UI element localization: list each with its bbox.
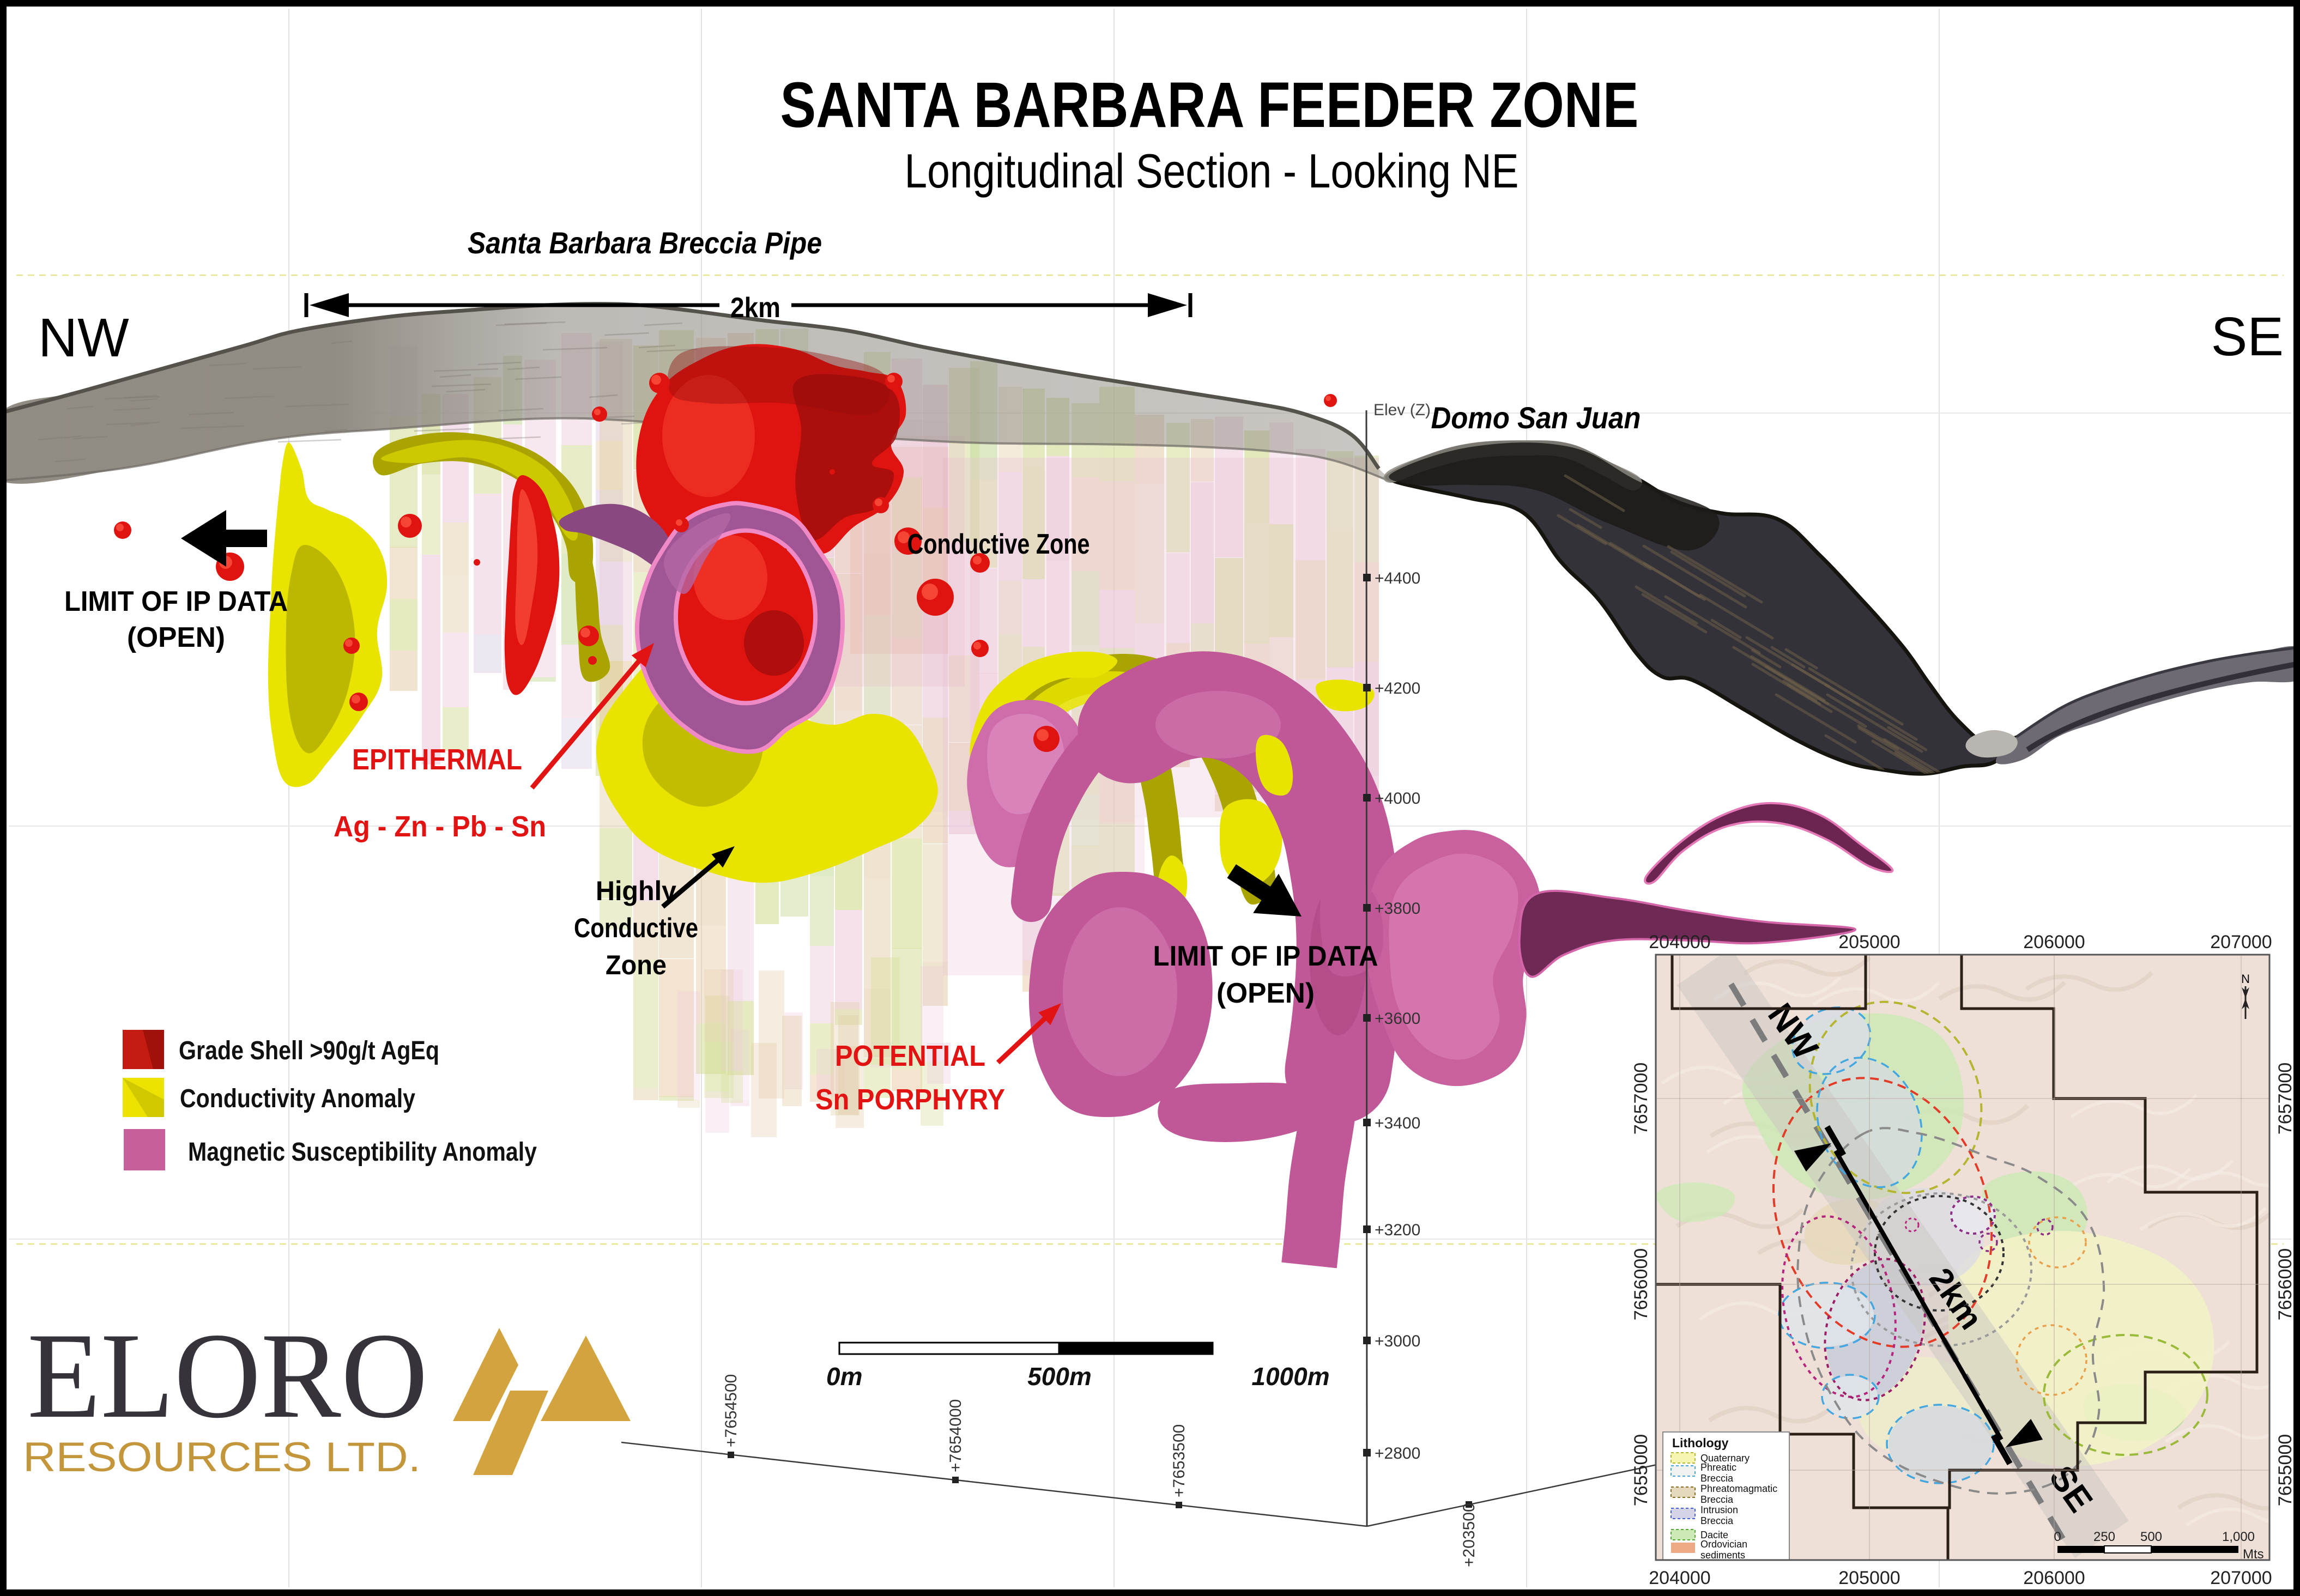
svg-text:Santa Barbara Breccia Pipe: Santa Barbara Breccia Pipe (468, 226, 822, 260)
svg-text:Ordovician: Ordovician (1700, 1539, 1747, 1550)
svg-text:500m: 500m (1027, 1362, 1092, 1391)
svg-text:Elev (Z): Elev (Z) (1373, 401, 1431, 419)
svg-text:1,000: 1,000 (2222, 1530, 2255, 1544)
svg-text:204000: 204000 (1649, 1568, 1710, 1588)
svg-text:+3600: +3600 (1375, 1010, 1420, 1028)
svg-text:+4200: +4200 (1375, 679, 1420, 697)
svg-text:Magnetic Susceptibility Anomal: Magnetic Susceptibility Anomaly (188, 1138, 537, 1167)
svg-text:7656000: 7656000 (2275, 1248, 2296, 1320)
svg-text:Grade Shell >90g/t AgEq: Grade Shell >90g/t AgEq (179, 1036, 439, 1065)
svg-text:N: N (2241, 972, 2250, 986)
svg-text:206000: 206000 (2023, 1568, 2085, 1588)
svg-text:+4000: +4000 (1375, 790, 1420, 808)
svg-text:+3400: +3400 (1375, 1114, 1420, 1132)
svg-text:Intrusion: Intrusion (1700, 1504, 1738, 1515)
svg-text:+7654500: +7654500 (722, 1374, 740, 1447)
svg-text:Ag - Zn - Pb - Sn: Ag - Zn - Pb - Sn (334, 810, 546, 843)
svg-text:7656000: 7656000 (1631, 1248, 1651, 1320)
svg-text:+203500: +203500 (1460, 1503, 1478, 1567)
svg-text:207000: 207000 (2210, 1568, 2272, 1588)
svg-text:Conductive: Conductive (574, 913, 698, 943)
svg-text:LIMIT OF IP DATA: LIMIT OF IP DATA (64, 586, 288, 617)
svg-text:Breccia: Breccia (1700, 1494, 1734, 1505)
svg-text:+7653500: +7653500 (1170, 1424, 1188, 1497)
svg-text:7655000: 7655000 (1631, 1434, 1651, 1506)
svg-text:+2800: +2800 (1375, 1445, 1420, 1463)
svg-text:204000: 204000 (1649, 932, 1710, 952)
svg-text:Conductivity Anomaly: Conductivity Anomaly (180, 1084, 415, 1113)
svg-text:SE: SE (2211, 306, 2284, 367)
svg-text:NW: NW (38, 307, 129, 368)
svg-text:+7654000: +7654000 (947, 1399, 965, 1472)
svg-text:205000: 205000 (1838, 1568, 1900, 1588)
svg-text:Longitudinal Section - Looking: Longitudinal Section - Looking NE (905, 144, 1519, 198)
svg-text:RESOURCES LTD.: RESOURCES LTD. (23, 1434, 421, 1480)
svg-text:205000: 205000 (1838, 932, 1900, 952)
svg-text:1000m: 1000m (1251, 1362, 1329, 1391)
svg-text:+3800: +3800 (1375, 900, 1420, 918)
svg-text:(OPEN): (OPEN) (1216, 978, 1315, 1009)
svg-text:sediments: sediments (1700, 1550, 1745, 1561)
svg-text:2km: 2km (730, 292, 780, 324)
svg-text:206000: 206000 (2023, 932, 2085, 952)
svg-text:Sn PORPHYRY: Sn PORPHYRY (815, 1083, 1005, 1116)
svg-text:207000: 207000 (2210, 932, 2272, 952)
svg-text:7657000: 7657000 (2275, 1063, 2296, 1134)
svg-text:Highly: Highly (596, 876, 676, 906)
svg-text:Conductive Zone: Conductive Zone (907, 529, 1090, 560)
svg-text:+3200: +3200 (1375, 1221, 1420, 1239)
svg-text:Lithology: Lithology (1672, 1436, 1729, 1450)
svg-text:Breccia: Breccia (1700, 1515, 1734, 1526)
svg-text:250: 250 (2093, 1530, 2115, 1544)
svg-text:EPITHERMAL: EPITHERMAL (352, 743, 522, 776)
svg-text:ELORO: ELORO (27, 1307, 428, 1443)
svg-text:+4400: +4400 (1375, 569, 1420, 587)
svg-text:SANTA BARBARA FEEDER ZONE: SANTA BARBARA FEEDER ZONE (780, 69, 1639, 141)
svg-text:(OPEN): (OPEN) (127, 622, 225, 653)
svg-text:POTENTIAL: POTENTIAL (835, 1040, 985, 1072)
svg-text:0: 0 (2054, 1530, 2061, 1544)
svg-text:Zone: Zone (606, 950, 667, 980)
svg-text:Domo San Juan: Domo San Juan (1431, 400, 1641, 435)
svg-text:0m: 0m (826, 1362, 862, 1391)
svg-text:Phreatomagmatic: Phreatomagmatic (1700, 1483, 1777, 1494)
svg-text:Breccia: Breccia (1700, 1473, 1734, 1484)
svg-text:+3000: +3000 (1375, 1332, 1420, 1350)
svg-text:7655000: 7655000 (2275, 1434, 2296, 1506)
svg-text:LIMIT OF IP DATA: LIMIT OF IP DATA (1153, 940, 1378, 972)
svg-text:Phreatic: Phreatic (1700, 1462, 1736, 1473)
svg-text:7657000: 7657000 (1631, 1063, 1651, 1134)
svg-text:500: 500 (2140, 1530, 2162, 1544)
